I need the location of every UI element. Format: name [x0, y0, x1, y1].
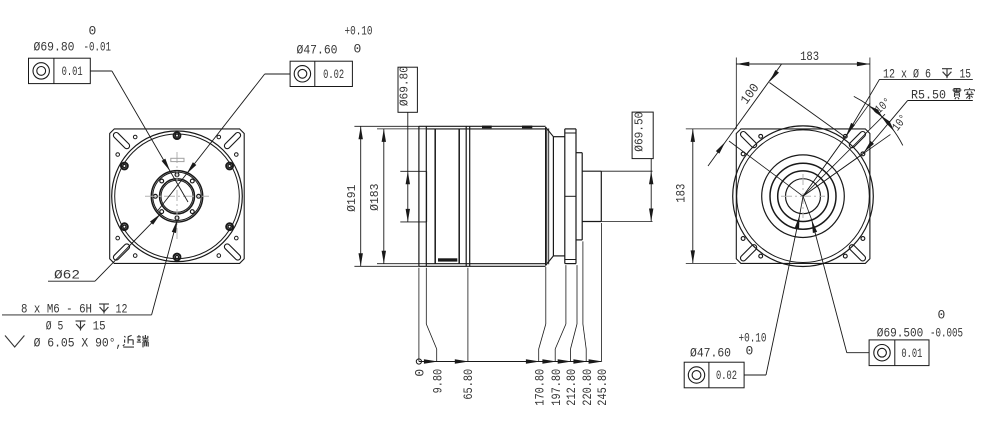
- svg-text:0: 0: [746, 344, 754, 359]
- svg-text:Ø191: Ø191: [346, 184, 359, 211]
- svg-text:Ø183: Ø183: [369, 183, 382, 210]
- svg-text:0.02: 0.02: [323, 67, 344, 82]
- svg-text:0: 0: [354, 42, 362, 57]
- svg-text:Ø69.80: Ø69.80: [34, 40, 75, 55]
- svg-text:212.80: 212.80: [564, 369, 579, 406]
- svg-text:183: 183: [674, 184, 689, 203]
- svg-text:12: 12: [116, 302, 128, 317]
- svg-text:220.80: 220.80: [580, 369, 595, 406]
- svg-text:15: 15: [93, 319, 106, 334]
- svg-text:-0.005: -0.005: [930, 326, 963, 341]
- svg-text:10°: 10°: [872, 95, 894, 117]
- svg-text:0.02: 0.02: [716, 368, 737, 383]
- svg-text:Ø 6.05 X 90°,: Ø 6.05 X 90°,: [34, 336, 123, 351]
- svg-text:0: 0: [938, 307, 946, 322]
- svg-text:Ø69.80: Ø69.80: [398, 66, 412, 106]
- svg-text:10°: 10°: [889, 112, 910, 134]
- svg-text:197.80: 197.80: [549, 369, 564, 406]
- svg-text:9.80: 9.80: [430, 369, 445, 394]
- svg-text:65.80: 65.80: [461, 369, 476, 400]
- svg-text:0.01: 0.01: [62, 64, 83, 79]
- svg-text:R5.50: R5.50: [911, 87, 946, 102]
- svg-text:Ø69.500: Ø69.500: [877, 326, 924, 341]
- svg-text:0.01: 0.01: [901, 346, 922, 361]
- svg-text:Ø69.50: Ø69.50: [633, 112, 647, 152]
- svg-text:0: 0: [413, 369, 428, 377]
- svg-text:183: 183: [800, 49, 819, 64]
- svg-text:170.80: 170.80: [532, 369, 547, 406]
- svg-text:Ø 5: Ø 5: [46, 319, 64, 334]
- svg-text:100: 100: [738, 81, 763, 108]
- svg-text:Ø47.60: Ø47.60: [297, 42, 338, 57]
- svg-text:12 x Ø 6: 12 x Ø 6: [883, 66, 931, 81]
- svg-text:15: 15: [960, 66, 972, 81]
- svg-text:Ø62: Ø62: [54, 268, 80, 283]
- svg-text:0: 0: [89, 24, 97, 39]
- svg-text:-0.01: -0.01: [84, 40, 112, 55]
- svg-text:+0.10: +0.10: [345, 24, 373, 39]
- svg-text:8 x M6 - 6H: 8 x M6 - 6H: [21, 302, 92, 317]
- svg-text:245.80: 245.80: [595, 369, 610, 406]
- svg-text:Ø47.60: Ø47.60: [690, 346, 731, 361]
